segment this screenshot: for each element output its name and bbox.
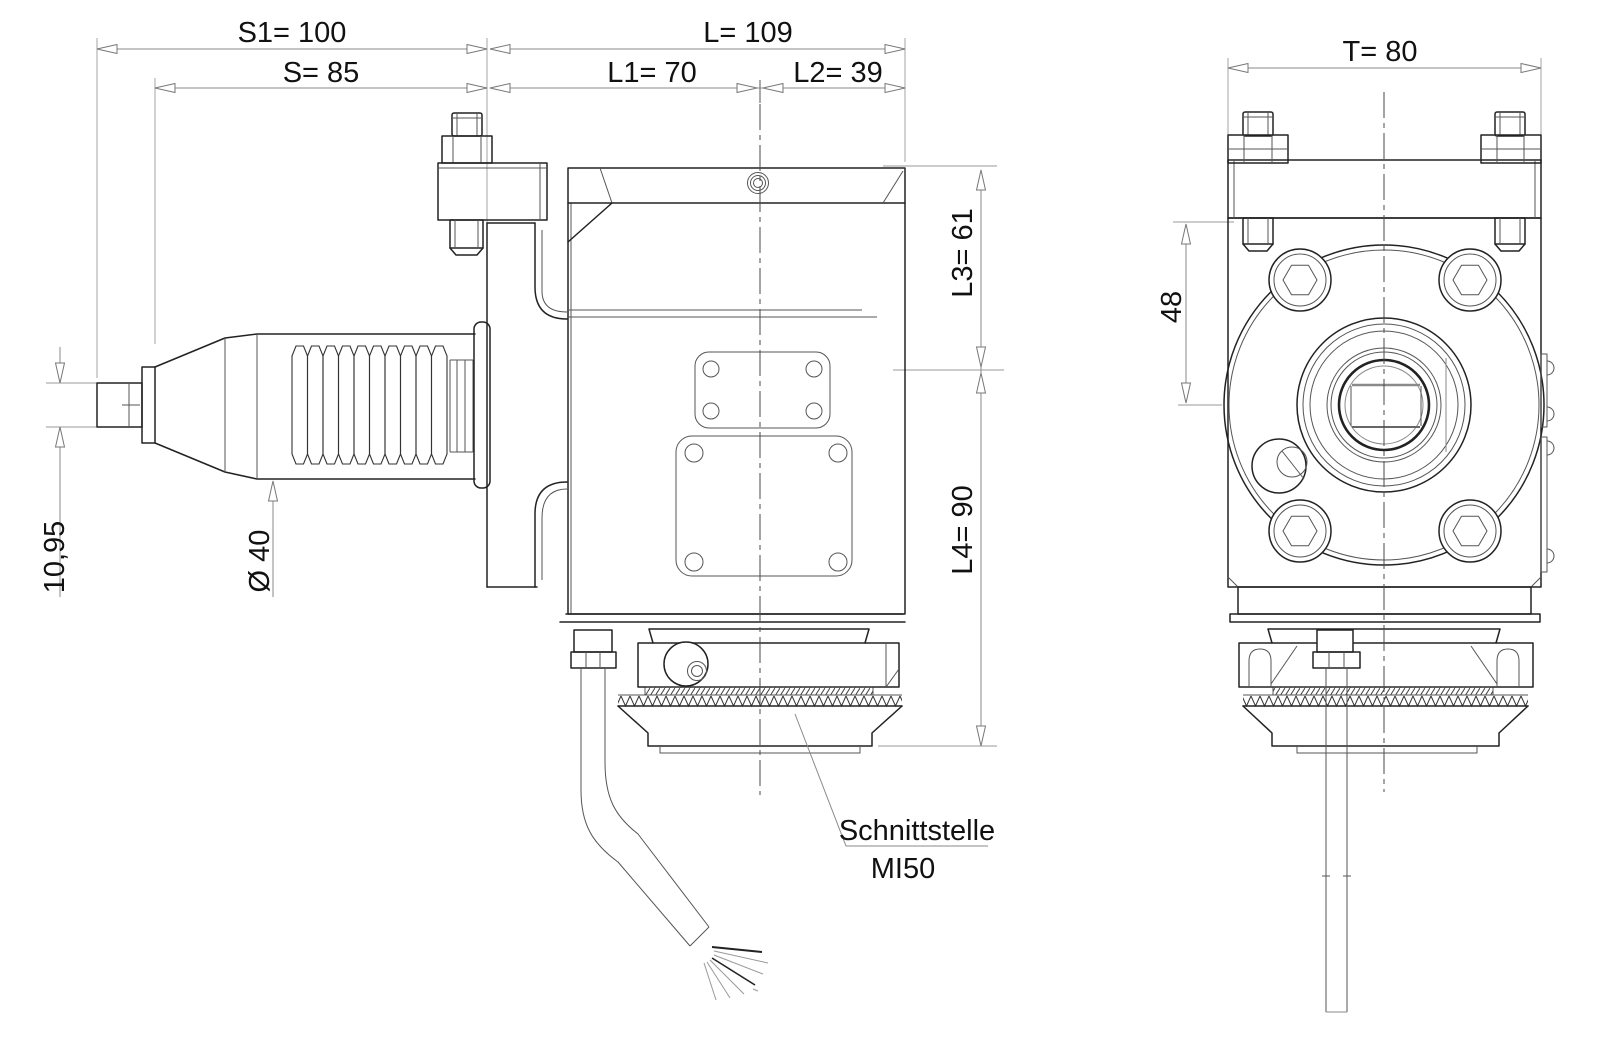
- dim-l1-label: L1= 70: [607, 57, 697, 89]
- dim-1095-label: 10,95: [39, 521, 71, 594]
- wire-spray: [704, 947, 768, 1000]
- dim-s1-label: S1= 100: [238, 17, 347, 49]
- clamp-bolt-assembly: [438, 113, 547, 255]
- angle-head-drawing: S1= 100 S= 85 L= 109 L1= 70 L2= 39 T= 80…: [0, 0, 1600, 1042]
- dimension-lines-side: [56, 45, 986, 747]
- mounting-pad-large: [676, 436, 852, 576]
- hex-socket-screw: [1439, 500, 1501, 562]
- side-view: [46, 38, 1004, 1000]
- mounting-pad-small: [695, 352, 830, 428]
- gearbox-housing: [560, 168, 905, 622]
- spindle-shank: [97, 322, 490, 488]
- interface-cone-front: [1243, 706, 1528, 753]
- dim-l-label: L= 109: [703, 17, 793, 49]
- cable-side: [581, 668, 768, 1000]
- technical-drawing-page: S1= 100 S= 85 L= 109 L1= 70 L2= 39 T= 80…: [0, 0, 1600, 1042]
- dim-t-label: T= 80: [1343, 36, 1418, 68]
- mounting-plate: [487, 223, 567, 587]
- dim-s-label: S= 85: [283, 57, 360, 89]
- interface-assembly-front: [1239, 629, 1533, 1012]
- clamp-boss: [664, 642, 708, 686]
- front-bolt-left: [1228, 112, 1288, 251]
- note-line1: Schnittstelle: [839, 815, 995, 847]
- bellows: [292, 346, 447, 464]
- knurled-ring-front: [1243, 687, 1528, 707]
- dim-l4-label: L4= 90: [947, 485, 979, 575]
- slotted-screw: [1252, 439, 1307, 493]
- front-body: [1224, 218, 1554, 622]
- interface-assembly-side: [571, 629, 902, 753]
- hex-socket-screw: [1439, 249, 1501, 311]
- top-screw: [748, 173, 769, 194]
- front-view: [1173, 58, 1554, 1012]
- extension-lines-side: [46, 38, 1004, 746]
- annotations: S1= 100 S= 85 L= 109 L1= 70 L2= 39 T= 80…: [39, 17, 1417, 885]
- interface-note: Schnittstelle MI50: [795, 714, 995, 885]
- cable-gland-side: [571, 630, 616, 668]
- dim-48-label: 48: [1156, 291, 1188, 323]
- cable-gland-front: [1313, 630, 1360, 668]
- cable-front: [1322, 668, 1351, 1012]
- front-bolt-right: [1481, 112, 1541, 251]
- hex-socket-screw: [1269, 500, 1331, 562]
- dim-dia40-label: Ø 40: [244, 530, 276, 593]
- note-line2: MI50: [871, 853, 935, 885]
- hex-socket-screw: [1269, 249, 1331, 311]
- dim-l2-label: L2= 39: [793, 57, 883, 89]
- dim-l3-label: L3= 61: [947, 208, 979, 298]
